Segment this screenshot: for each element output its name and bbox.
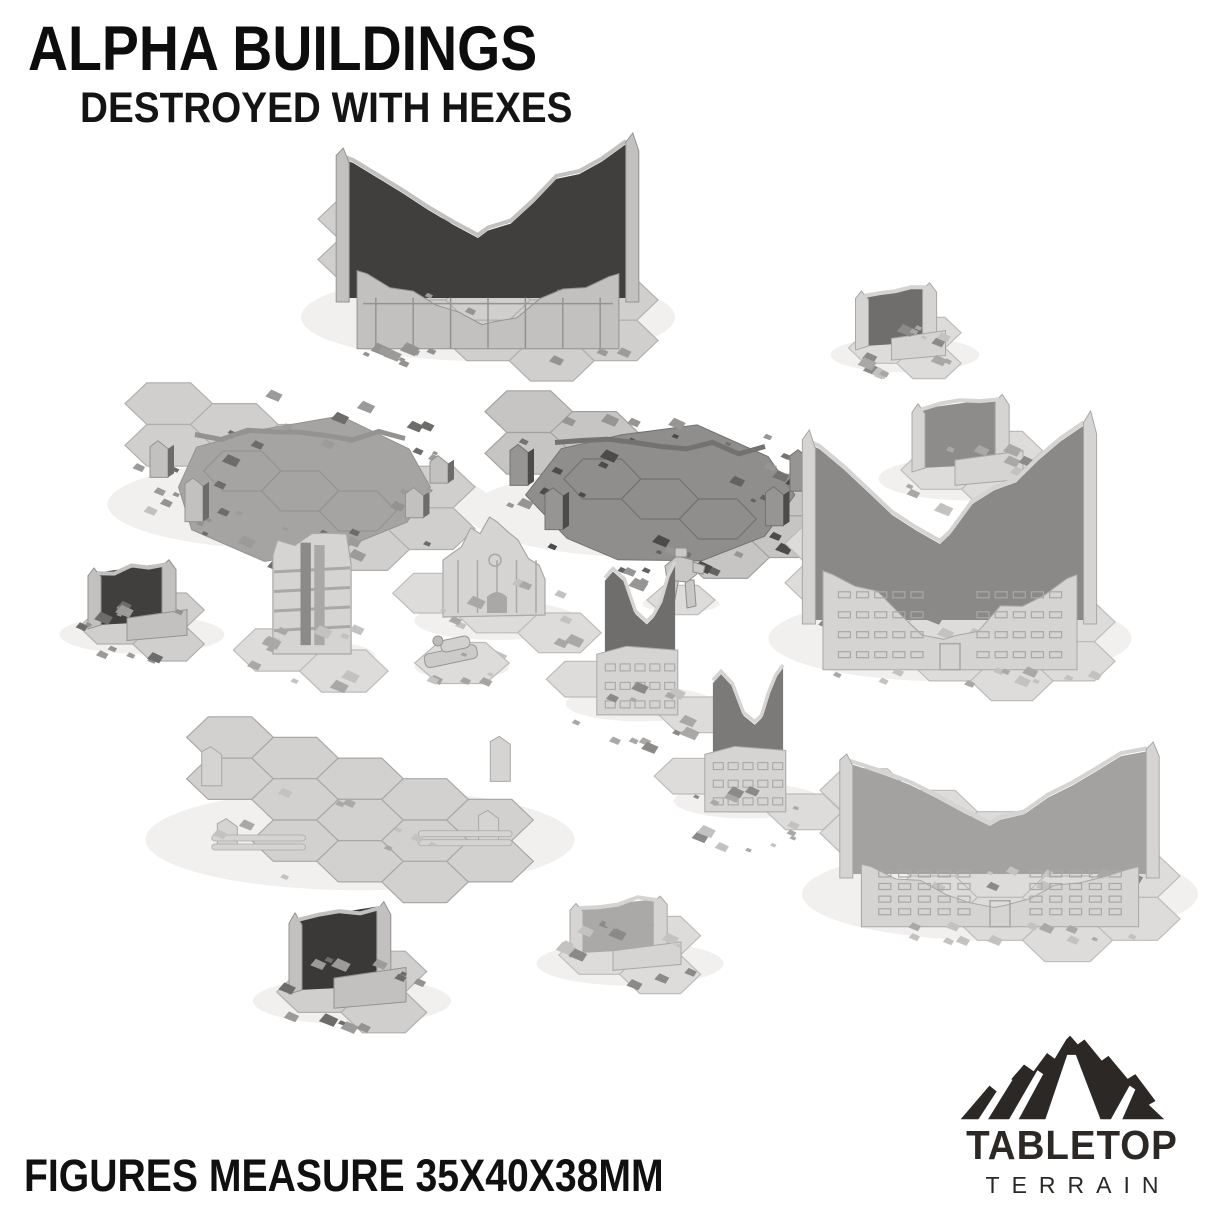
product-subtitle: DESTROYED WITH HEXES: [80, 84, 572, 133]
ruin-small-bottom-left: [253, 902, 451, 1034]
ruin-large-bottom-right: [802, 742, 1198, 962]
product-title: ALPHA BUILDINGS: [28, 16, 555, 82]
ruin-small-bottom-center: [537, 896, 724, 993]
platform-hex: [146, 717, 575, 903]
header: ALPHA BUILDINGS DESTROYED WITH HEXES: [28, 16, 627, 133]
facade-tower-mid: [546, 562, 734, 754]
wreck-walker: [415, 635, 510, 687]
ruin-small-left: [60, 560, 225, 664]
logo-wordmark: TABLETOP: [955, 1122, 1188, 1169]
mountain-icon: [954, 1028, 1190, 1124]
figure-dimensions-caption: FIGURES MEASURE 35X40X38MM: [24, 1150, 664, 1202]
tabletop-terrain-logo: TABLETOP TERRAIN: [948, 1028, 1196, 1199]
ruin-large-top: [301, 133, 675, 381]
ruin-small-top-right: [831, 283, 980, 380]
logo-subtext: TERRAIN: [948, 1172, 1196, 1199]
